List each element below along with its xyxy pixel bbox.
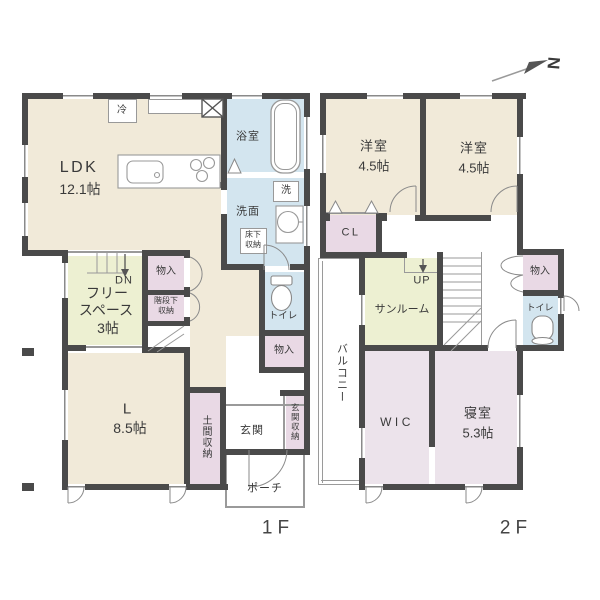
label-bath: 浴室 [236,132,260,143]
north-letter: N [543,56,564,70]
wall-segment [320,93,526,99]
north-arrow-icon [492,60,548,81]
wall-segment [22,250,68,256]
label-porch: ポーチ [247,484,283,495]
window [359,295,365,325]
label-bedroom: 寝室 [464,407,492,420]
wall-segment [184,387,226,393]
label-floor-1f: 1F [262,519,294,538]
window [22,203,28,236]
label-entrance-storage: 玄関収納 [291,403,300,441]
label-free-space-1: フリー [86,286,128,300]
room-hall-column [190,250,226,387]
thin-line [404,272,438,273]
label-storage-2f: 物入 [530,267,550,277]
window [232,93,262,99]
label-living-size: 8.5帖 [113,421,146,435]
thin-line [86,346,142,348]
window [62,263,68,298]
label-stairs-down: DN [115,276,133,287]
kitchen-counter [148,99,203,114]
wall-segment [378,213,387,221]
wall-segment [62,484,228,490]
porch-area [225,450,305,508]
storage-2f-door-arc [511,275,523,292]
wall-segment [22,348,34,356]
window [304,117,310,169]
window [150,93,182,99]
window [169,484,186,490]
thin-line [326,212,376,214]
floor-plan: LDK 12.1帖 冷 浴室 洗 洗面 床下 収納 フリー スペース 3帖 DN… [0,0,600,600]
wall-segment [223,449,310,455]
wall-segment [359,345,488,351]
window [517,395,523,447]
label-ldk: LDK [60,160,99,176]
wall-segment [221,214,227,270]
window [367,93,403,99]
wall-segment [259,367,310,373]
window [465,484,483,490]
wall-segment [420,93,426,221]
window [68,484,85,490]
label-west-room-a-size: 4.5帖 [358,160,389,173]
window [365,484,383,490]
wall-segment [415,215,491,221]
label-free-space-2: スペース [79,303,133,317]
label-living: L [123,402,131,417]
label-washer: 洗 [281,186,291,196]
label-bedroom-size: 5.3帖 [462,427,493,440]
label-underfloor-1: 床下 [245,231,261,239]
window [517,137,523,174]
window [460,93,492,99]
label-doma-storage: 土間収納 [200,415,210,459]
label-hall-closet: 物入 [274,346,294,356]
window [359,428,365,458]
wall-segment [320,93,326,254]
room-living [68,353,184,484]
thin-line [321,480,362,481]
label-sunroom: サンルーム [375,305,430,316]
label-under-stair-2: 収納 [158,307,174,315]
window [22,145,28,177]
label-floor-2f: 2F [500,519,532,538]
label-ldk-size: 12.1帖 [59,182,100,196]
wall-segment [429,351,435,447]
label-entrance: 玄関 [240,426,264,437]
wall-segment [359,484,523,490]
wall-segment [517,249,564,255]
window [62,390,68,440]
wall-segment [142,250,190,256]
wall-segment [142,321,190,326]
wall-segment [437,252,443,351]
label-fridge: 冷 [117,106,127,116]
wall-segment [184,347,190,484]
storage-2f-door-arc [501,256,523,275]
wall-segment [142,290,190,295]
room-west-b [426,99,517,215]
wall-segment [517,93,523,255]
toilet-2f-casement-arc [564,296,579,311]
wall-segment [142,250,148,352]
bedroom-door-arc [488,320,516,348]
window [63,93,93,99]
wall-segment [259,330,310,336]
thin-line [322,261,323,483]
label-toilet-1f: トイレ [269,311,298,321]
label-wic: WIC [380,416,414,428]
label-underfloor-2: 収納 [245,241,261,249]
label-west-room-a: 洋室 [360,140,388,153]
stairs-2f [443,258,481,351]
label-stair-closet: 物入 [156,267,176,277]
label-under-stair-1: 階段下 [154,297,178,305]
thin-line [481,252,482,346]
wall-segment [22,483,34,491]
window [304,206,310,246]
window [558,298,564,314]
label-stairs-up: UP [413,276,430,287]
wall-segment [221,264,264,270]
wall-segment [290,264,304,270]
label-balcony: バルコニー [336,343,347,403]
label-closet-2f: CL [341,228,360,239]
label-free-space-size: 3帖 [97,321,119,335]
thin-line [404,258,405,273]
wall-segment [259,266,265,373]
label-toilet-2f: トイレ [526,304,553,313]
wall-segment [142,347,190,353]
wall-segment [516,345,564,351]
label-west-room-b-size: 4.5帖 [458,162,489,175]
window [320,135,326,173]
thin-line [67,251,142,253]
label-washroom: 洗面 [236,207,260,218]
wall-segment [221,93,227,190]
room-west-a [326,99,420,215]
label-west-room-b: 洋室 [460,142,488,155]
wall-segment [220,387,226,484]
room-toilet-1f [265,272,304,330]
